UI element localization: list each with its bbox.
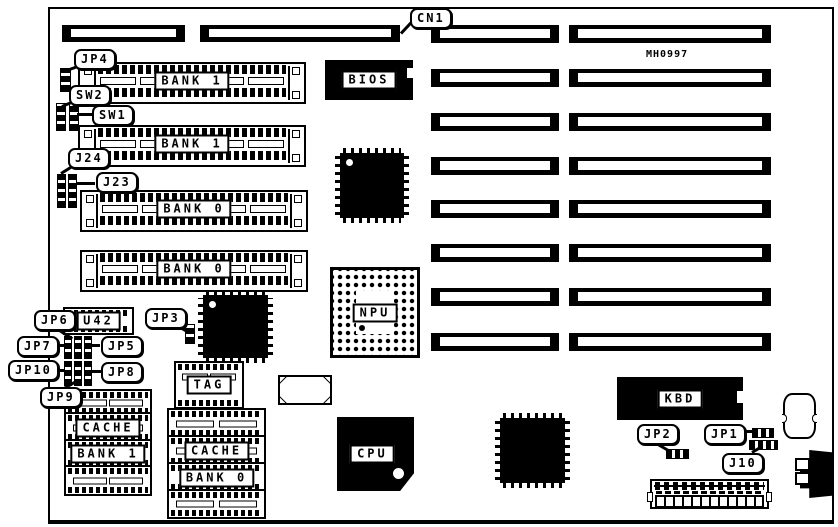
simm-bank-label: BANK 0	[156, 200, 231, 219]
simm-bank-label: BANK 1	[154, 72, 229, 91]
npu-label: NPU	[353, 303, 398, 322]
cache-chip	[64, 465, 152, 496]
qfp-chip-1	[340, 153, 404, 218]
u42-label: U42	[76, 312, 121, 331]
din-pin-tab	[795, 472, 810, 485]
cache-right-bank-label: BANK 0	[179, 468, 254, 487]
callout-jp6: JP6	[34, 310, 76, 331]
pin1-dot	[209, 301, 216, 308]
callout-j10: J10	[722, 453, 764, 474]
tag-chip: TAG	[174, 361, 244, 409]
callout-jp4: JP4	[74, 49, 116, 70]
isa-slot-short-4	[431, 157, 559, 175]
callout-jp2: JP2	[637, 424, 679, 445]
callout-sw2: SW2	[69, 85, 111, 106]
isa-slot-short-8	[431, 333, 559, 351]
callout-j23: J23	[96, 172, 138, 193]
jp5-pointer	[88, 344, 100, 347]
top-connector-2-cn1	[200, 25, 400, 42]
sw1-pointer	[77, 113, 92, 116]
callout-cn1: CN1	[410, 8, 452, 29]
cache-left-bank-label: BANK 1	[70, 445, 145, 464]
bios-chip: BIOS	[325, 60, 413, 100]
top-connector-1	[62, 25, 185, 42]
isa-slot-short-5	[431, 200, 559, 218]
cpu-label: CPU	[350, 445, 395, 464]
sw1-sw2-switches	[56, 103, 79, 131]
callout-jp9: JP9	[40, 387, 82, 408]
cpu-chip: CPU	[337, 417, 414, 491]
isa-slot-short-2	[431, 69, 559, 87]
callout-jp10: JP10	[8, 360, 59, 381]
cache-chip	[167, 489, 266, 519]
j23-j24-pins	[57, 174, 77, 208]
isa-slot-long-1	[569, 25, 771, 43]
din-pin-tab	[795, 458, 810, 471]
npu-socket: NPU	[330, 267, 420, 358]
isa-slot-long-2	[569, 69, 771, 87]
tag-label: TAG	[187, 376, 232, 395]
isa-slot-long-7	[569, 288, 771, 306]
callout-jp8: JP8	[101, 362, 143, 383]
isa-slot-long-6	[569, 244, 771, 262]
jp3-jumper	[185, 324, 195, 344]
j23-pointer	[76, 182, 95, 185]
pin1-dot	[359, 325, 365, 331]
pin1-dot	[346, 159, 353, 166]
callout-jp5: JP5	[101, 336, 143, 357]
qfp-chip-2	[203, 295, 268, 358]
isa-slot-short-1	[431, 25, 559, 43]
callout-jp7: JP7	[17, 336, 59, 357]
isa-slot-long-4	[569, 157, 771, 175]
pin1-dot	[393, 468, 404, 479]
kbd-label: KBD	[658, 389, 703, 408]
board-part-number: MH0997	[646, 49, 688, 60]
jp8-jp9-jp10-jumper-block	[64, 361, 92, 386]
simm-socket-bank1-b: BANK 1	[78, 125, 306, 167]
cache-left-label: CACHE	[75, 418, 140, 437]
simm-socket-bank0-b: BANK 0	[80, 250, 308, 292]
component-outline	[783, 393, 816, 439]
callout-j24: J24	[68, 148, 110, 169]
isa-slot-short-3	[431, 113, 559, 131]
callout-sw1: SW1	[92, 105, 134, 126]
power-connector	[650, 479, 769, 509]
cache-right-label: CACHE	[184, 442, 249, 461]
isa-slot-long-8	[569, 333, 771, 351]
motherboard-layout-diagram: MH0997 BANK 1 BANK 1 BANK 0	[0, 0, 838, 527]
jp1-jumper	[752, 428, 774, 438]
isa-slot-short-7	[431, 288, 559, 306]
jp8-pointer	[88, 370, 101, 373]
jp5-jp6-jp7-jumper-block	[64, 336, 92, 359]
isa-slot-long-5	[569, 200, 771, 218]
kbd-chip: KBD	[617, 377, 743, 420]
qfp-chip-3	[500, 418, 565, 483]
isa-slot-short-6	[431, 244, 559, 262]
callout-jp3: JP3	[145, 308, 187, 329]
simm-bank-label: BANK 0	[156, 260, 231, 279]
oscillator	[278, 375, 332, 405]
simm-socket-bank0-a: BANK 0	[80, 190, 308, 232]
simm-bank-label: BANK 1	[154, 135, 229, 154]
callout-jp1: JP1	[704, 424, 746, 445]
bios-label: BIOS	[342, 71, 397, 90]
isa-slot-long-3	[569, 113, 771, 131]
